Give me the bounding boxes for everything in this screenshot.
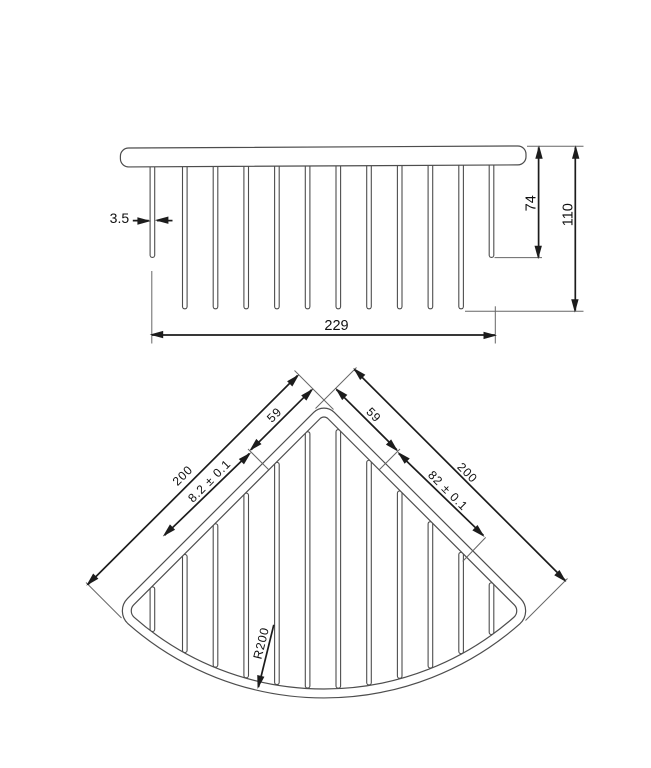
- svg-text:110: 110: [561, 203, 577, 226]
- svg-text:229: 229: [324, 318, 348, 334]
- svg-text:74: 74: [523, 195, 539, 211]
- svg-text:3.5: 3.5: [110, 210, 130, 226]
